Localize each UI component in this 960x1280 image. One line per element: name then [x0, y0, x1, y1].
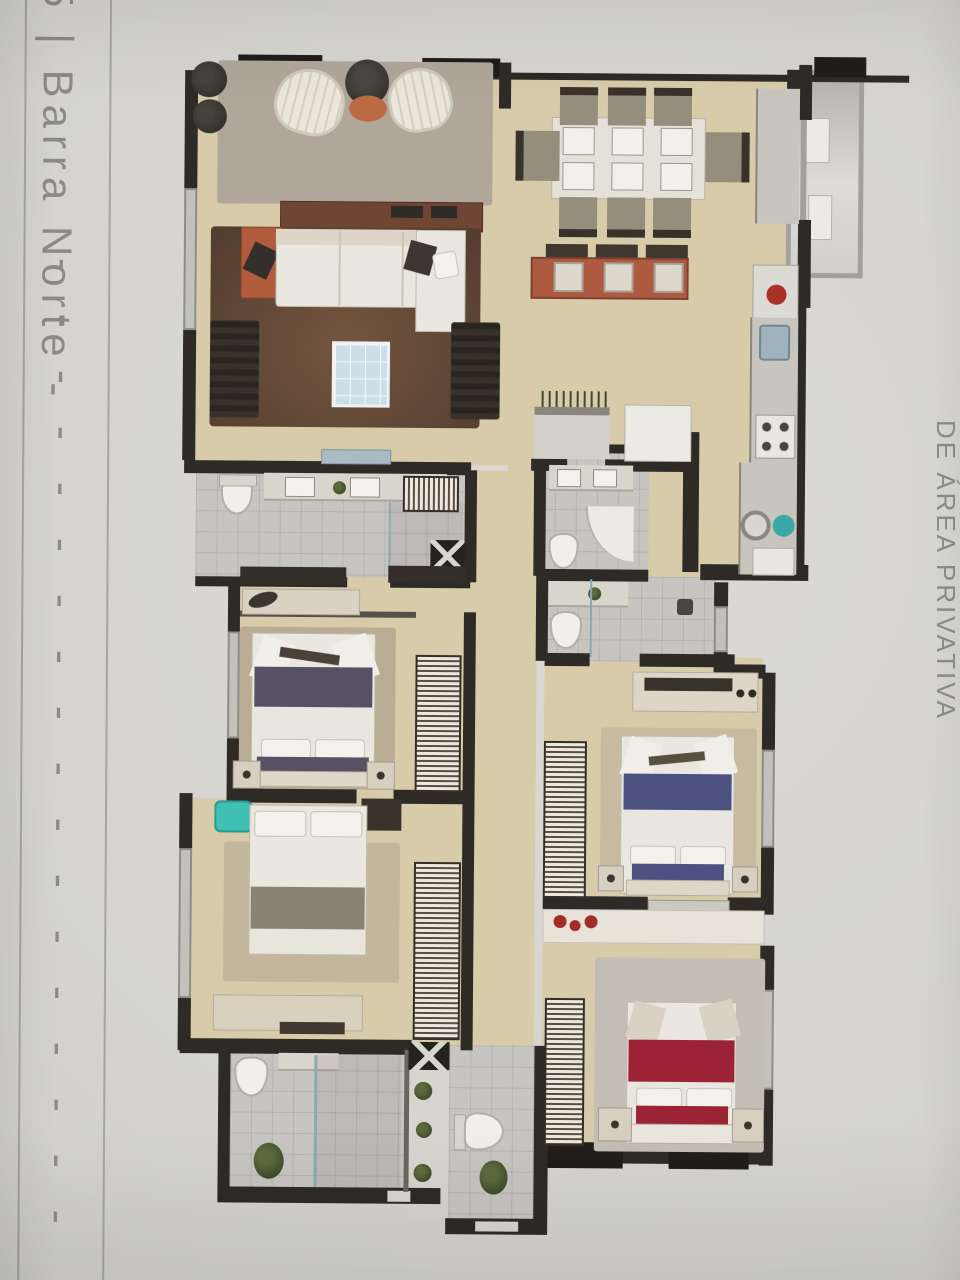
magazine-page-photo: 5 | Barra Norte - ------------------ DE … — [0, 0, 960, 1280]
floor-plan — [0, 0, 960, 1280]
bathroom-bottom-center — [0, 0, 960, 1280]
plant-icon — [479, 1160, 507, 1194]
toilet — [464, 1112, 504, 1150]
